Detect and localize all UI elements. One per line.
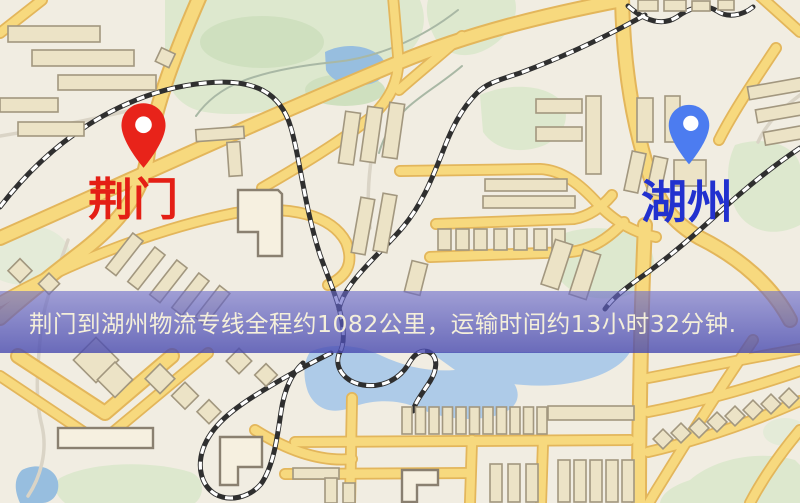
route-info-banner: 荆门到湖州物流专线全程约1082公里，运输时间约13小时32分钟. [0,291,800,353]
origin-pin [120,102,167,171]
route-map-image: 荆门 湖州 荆门到湖州物流专线全程约1082公里，运输时间约13小时32分钟. [0,0,800,503]
destination-pin [667,104,711,167]
origin-city-label: 荆门 [88,177,178,222]
map-pin-icon [667,104,711,167]
destination-city-label: 湖州 [641,179,733,225]
map-graphic [0,0,800,503]
route-info-text: 荆门到湖州物流专线全程约1082公里，运输时间约13小时32分钟. [29,305,737,339]
map-pin-icon [120,102,167,171]
